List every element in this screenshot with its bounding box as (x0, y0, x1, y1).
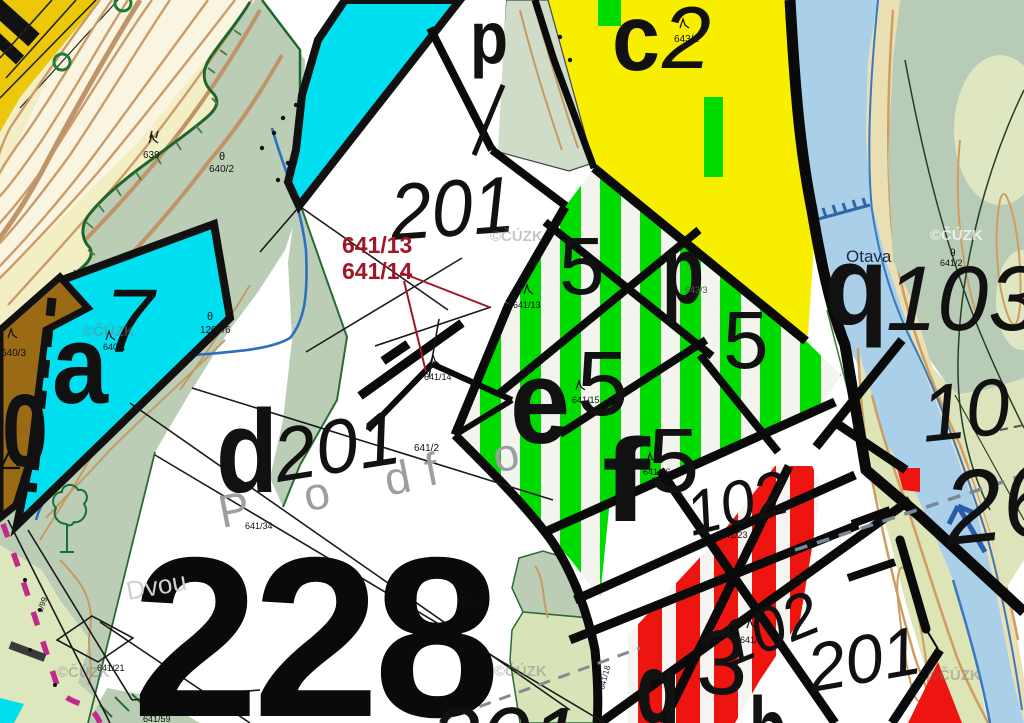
svg-text:5: 5 (559, 221, 605, 312)
svg-text:©ČÚZK: ©ČÚZK (494, 662, 547, 680)
svg-text:0: 0 (2, 373, 48, 488)
svg-text:641/2: 641/2 (940, 258, 963, 268)
svg-text:641/4: 641/4 (740, 635, 763, 645)
svg-text:©ČÚZK: ©ČÚZK (82, 322, 135, 340)
svg-text:641/13: 641/13 (513, 300, 541, 310)
svg-text:©ČÚZK: ©ČÚZK (930, 226, 983, 244)
svg-text:b: b (749, 678, 787, 723)
svg-text:643/3: 643/3 (685, 285, 708, 295)
svg-text:1207/6: 1207/6 (200, 325, 231, 336)
svg-text:c: c (612, 0, 660, 91)
svg-text:640/2: 640/2 (209, 164, 234, 175)
svg-text:641/14: 641/14 (342, 258, 413, 284)
svg-text:θ: θ (950, 248, 956, 259)
svg-text:©ČÚZK: ©ČÚZK (928, 666, 981, 684)
svg-text:q: q (824, 223, 888, 348)
svg-text:641/59: 641/59 (143, 714, 171, 723)
svg-text:a: a (52, 302, 109, 427)
svg-text:©ČÚZK: ©ČÚZK (57, 663, 110, 681)
svg-text:θ: θ (219, 151, 225, 163)
svg-text:θ: θ (207, 311, 213, 323)
svg-text:643/1: 643/1 (674, 34, 699, 45)
svg-text:g: g (636, 633, 680, 723)
svg-text:Otava: Otava (846, 247, 892, 266)
svg-text:641/15: 641/15 (572, 395, 600, 405)
svg-text:p: p (662, 218, 704, 324)
svg-text:640/1: 640/1 (103, 342, 126, 352)
svg-text:641/34: 641/34 (245, 521, 273, 531)
svg-text:26: 26 (937, 440, 1024, 568)
svg-text:641/16: 641/16 (643, 467, 671, 477)
svg-text:641/14: 641/14 (424, 372, 452, 382)
svg-text:10: 10 (916, 361, 1014, 459)
svg-text:7: 7 (104, 272, 157, 372)
svg-text:201: 201 (429, 690, 580, 723)
svg-text:641/2: 641/2 (414, 443, 439, 454)
svg-text:641/13: 641/13 (342, 232, 412, 258)
svg-text:5: 5 (723, 295, 769, 386)
svg-text:641/5: 641/5 (462, 598, 485, 608)
svg-text:641/23: 641/23 (720, 530, 748, 540)
svg-text:3: 3 (696, 612, 747, 714)
svg-text:©ČÚZK: ©ČÚZK (490, 227, 543, 245)
svg-text:639: 639 (143, 150, 160, 161)
svg-text:p: p (470, 0, 508, 79)
svg-text:f: f (602, 415, 651, 547)
svg-text:640/3: 640/3 (1, 348, 26, 359)
